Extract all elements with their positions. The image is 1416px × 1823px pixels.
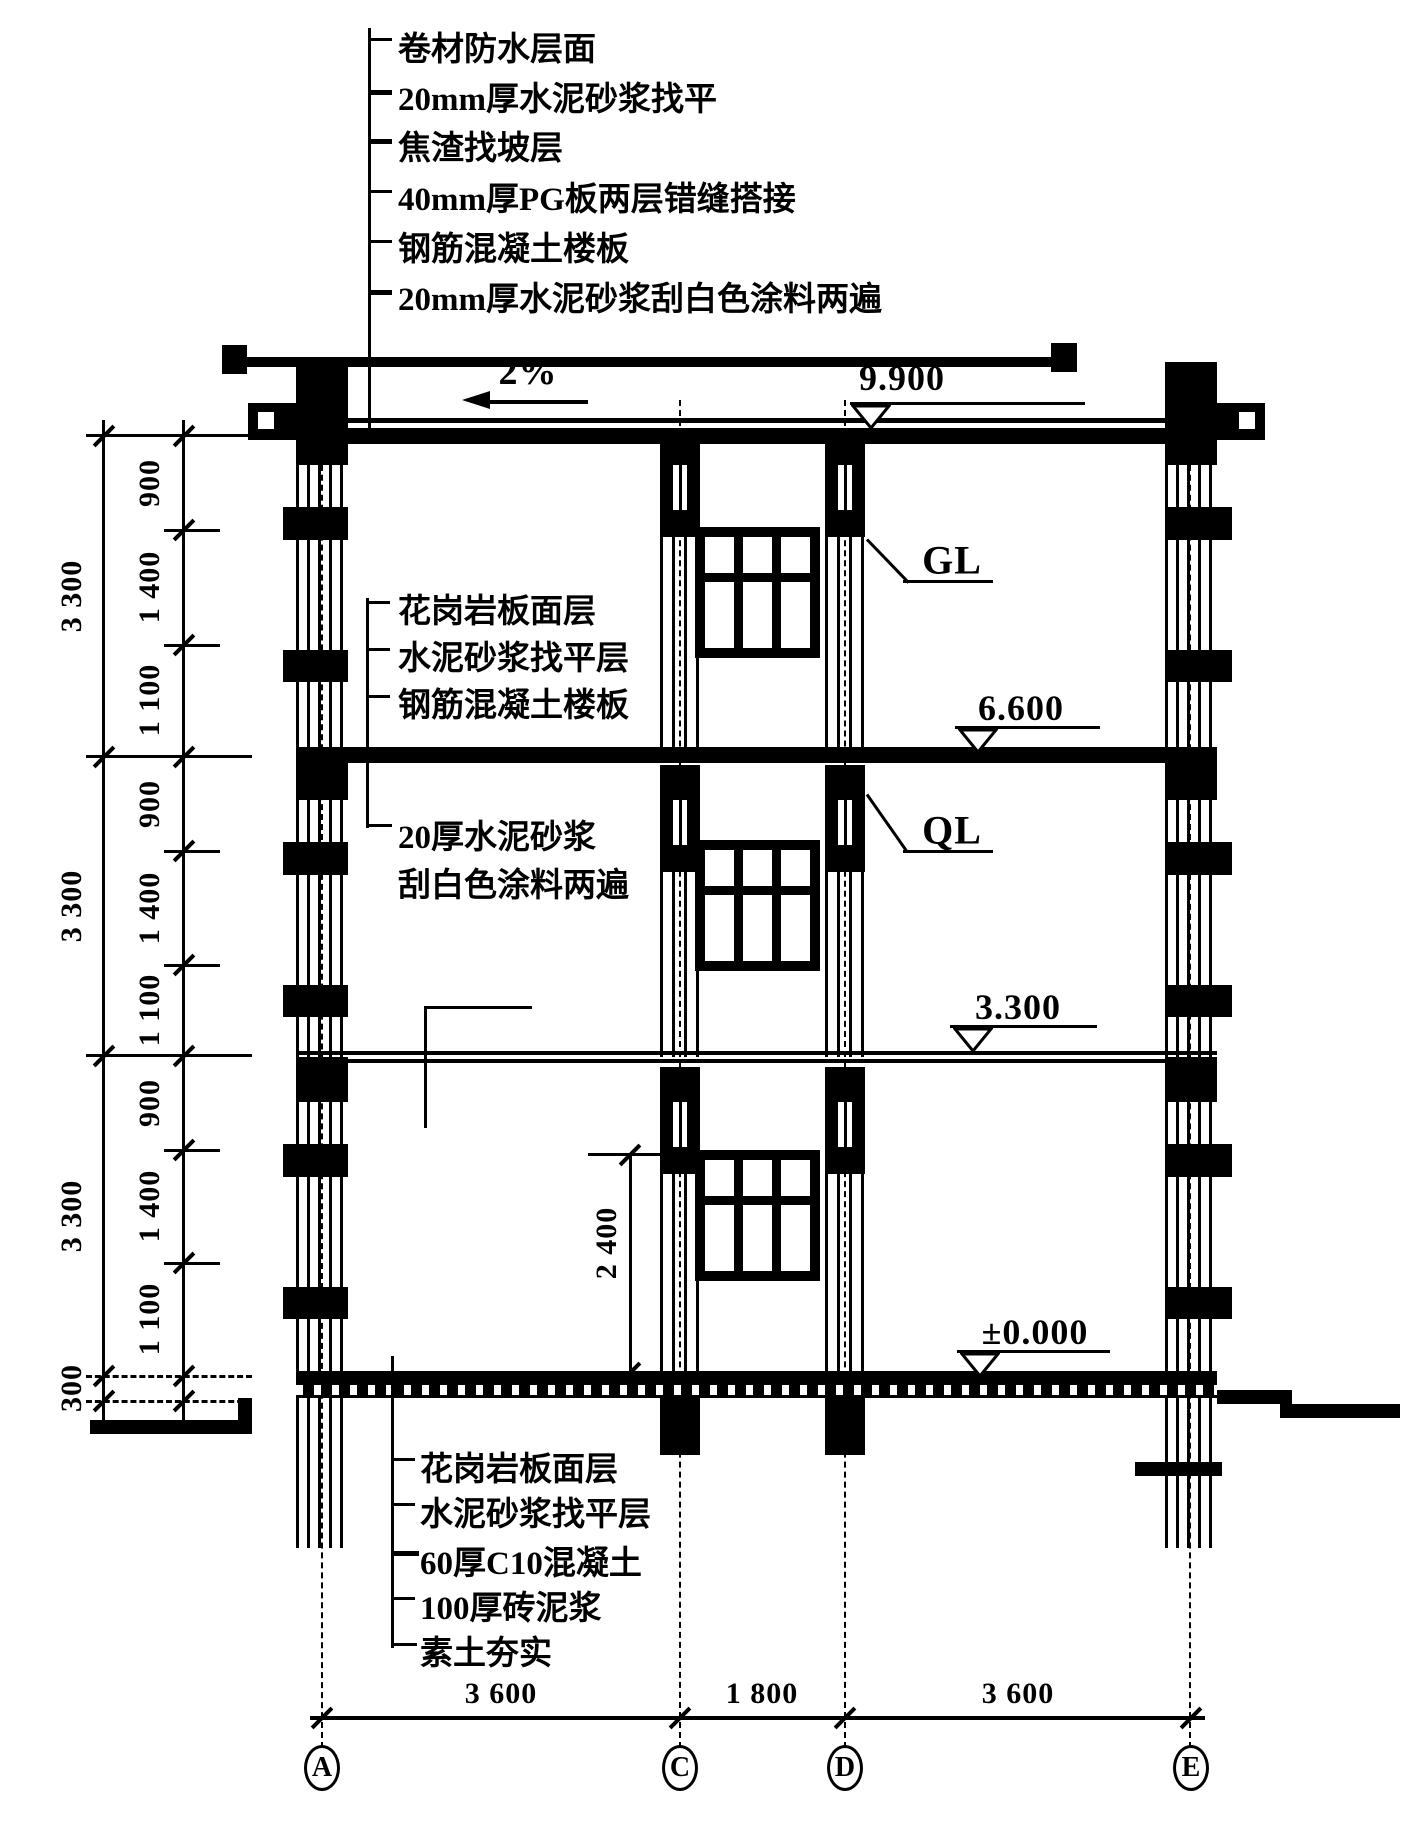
- sill-notch: [283, 842, 298, 875]
- wall-e-story-2: [1165, 755, 1217, 1057]
- slope-arrow-icon: [462, 391, 490, 409]
- callout-tick: [391, 1597, 415, 1600]
- ground-bedding-course: [296, 1382, 1217, 1398]
- column-d-story-1: [825, 1057, 865, 1373]
- elevation-triangle-icon: [953, 1027, 993, 1053]
- grid-label: A: [312, 1752, 332, 1784]
- roof-layer-label: 卷材防水层面: [398, 22, 596, 70]
- grid-bubble-d: D: [827, 1745, 863, 1791]
- wall-e-story-1: [1165, 1057, 1217, 1373]
- dim-label-bay: 3 600: [982, 1677, 1055, 1711]
- dim-label-window-height: 2 400: [590, 1207, 624, 1280]
- window-story-2: [695, 840, 820, 971]
- floor-slab-3300-top-line: [296, 1051, 1217, 1055]
- dim-label-bay: 3 600: [465, 1677, 538, 1711]
- dim-label-segment: 900: [133, 1079, 167, 1127]
- wall-a-story-1: [296, 1057, 348, 1373]
- sill-notch: [283, 1144, 298, 1177]
- grid-bubble-a: A: [304, 1745, 340, 1791]
- apron-right-lower: [1280, 1404, 1400, 1418]
- elevation-label-3300: 3.300: [975, 986, 1061, 1028]
- sill-notch: [1217, 507, 1232, 540]
- callout-tick: [391, 1458, 415, 1461]
- ground-layer-label: 60厚C10混凝土: [420, 1536, 642, 1584]
- footing-e: [1135, 1462, 1222, 1476]
- sill-notch: [1217, 1287, 1232, 1319]
- window-transom: [705, 886, 810, 895]
- floor-layer-label: 花岗岩板面层: [398, 584, 596, 632]
- elevation-triangle-icon: [958, 728, 998, 754]
- ground-callout-leader: [391, 1356, 394, 1648]
- dim-label-segment: 1 100: [133, 1283, 167, 1356]
- roof-layer-label: 20mm厚水泥砂浆刮白色涂料两遍: [398, 272, 882, 320]
- coping-hole-e: [1239, 412, 1255, 429]
- ground-floor-slab: [296, 1371, 1217, 1382]
- wall-finish-label: 刮白色涂料两遍: [398, 858, 629, 906]
- window-story-3: [695, 527, 820, 658]
- callout-tick: [391, 1551, 419, 1556]
- finish-leader-horizontal: [424, 1006, 532, 1009]
- dim-label-segment: 1 400: [133, 1170, 167, 1243]
- coping-block-a: [248, 403, 298, 440]
- callout-tick: [366, 648, 390, 651]
- ground-layer-label: 水泥砂浆找平层: [420, 1487, 651, 1535]
- dim-extension-line: [164, 644, 220, 647]
- sill-notch: [283, 507, 298, 540]
- dim-line-inner: [182, 420, 185, 1420]
- callout-tick: [368, 139, 392, 144]
- roof-layer-label: 焦渣找坡层: [398, 121, 563, 169]
- callout-tick: [366, 695, 390, 698]
- floor-slab-6600: [296, 747, 1217, 763]
- grid-bubble-e: E: [1173, 1745, 1209, 1791]
- callout-elbow: [391, 1643, 417, 1646]
- sill-notch: [1217, 650, 1232, 682]
- dim-line-bottom: [310, 1716, 1205, 1720]
- sill-notch: [283, 1287, 298, 1319]
- window-mullion: [772, 537, 781, 648]
- elevation-label-6600: 6.600: [978, 687, 1064, 729]
- grade-level-dash-line: [86, 1400, 252, 1403]
- grid-label: C: [670, 1752, 690, 1784]
- apron-left: [90, 1420, 252, 1434]
- roof-slab-top-line: [296, 418, 1217, 423]
- dim-extension-line: [164, 964, 220, 967]
- window-mullion: [772, 850, 781, 961]
- dim-label-bay: 1 800: [726, 1677, 799, 1711]
- column-c-story-3: [660, 420, 700, 755]
- callout-elbow: [366, 824, 392, 827]
- wall-finish-label: 20厚水泥砂浆: [398, 810, 596, 858]
- roof-slab: [296, 428, 1217, 444]
- floor-layer-label: 水泥砂浆找平层: [398, 631, 629, 679]
- column-d-story-3: [825, 420, 865, 755]
- grid-label: E: [1182, 1752, 1201, 1784]
- roof-callout-leader: [368, 28, 371, 432]
- wall-e-story-3: [1165, 420, 1217, 755]
- coping-block-e: [1215, 403, 1265, 440]
- gl-leader-diagonal: [866, 538, 910, 583]
- elevation-triangle-icon: [960, 1352, 1000, 1378]
- floor-callout-leader: [366, 598, 369, 828]
- sill-notch: [283, 650, 298, 682]
- elevation-triangle-icon: [851, 404, 891, 430]
- dim-label-overall: 3 300: [55, 870, 89, 943]
- callout-tick: [368, 290, 392, 295]
- coping-hole-a: [258, 412, 274, 429]
- ql-label: QL: [922, 807, 982, 854]
- dim-label-overall: 3 300: [55, 1180, 89, 1253]
- sill-notch: [1217, 1144, 1232, 1177]
- window-mullion: [734, 850, 743, 961]
- column-d-story-2: [825, 755, 865, 1057]
- roof-layer-label: 钢筋混凝土楼板: [398, 222, 629, 270]
- window-story-1: [695, 1150, 820, 1281]
- callout-tick: [368, 190, 392, 193]
- window-mullion: [734, 1160, 743, 1271]
- sill-notch: [1217, 985, 1232, 1017]
- floor-slab-3300-bottom-line: [296, 1059, 1217, 1063]
- dim-label-segment: 900: [133, 459, 167, 507]
- callout-tick: [391, 1503, 415, 1506]
- parapet-end-block-left: [222, 345, 247, 374]
- floor-layer-label: 钢筋混凝土楼板: [398, 678, 629, 726]
- dim-label-segment: 1 400: [133, 551, 167, 624]
- slope-label: 2%: [499, 350, 558, 394]
- dim-label-overall: 3 300: [55, 560, 89, 633]
- dim-extension-line: [86, 1054, 252, 1057]
- dim-label-segment: 1 100: [133, 664, 167, 737]
- ground-layer-label: 素土夯实: [420, 1626, 552, 1674]
- window-transom: [705, 1196, 810, 1205]
- window-transom: [705, 573, 810, 582]
- ground-layer-label: 花岗岩板面层: [420, 1442, 618, 1490]
- dim-extension-line: [164, 1149, 220, 1152]
- apron-left-riser: [238, 1398, 252, 1434]
- finish-leader-vertical: [424, 1006, 427, 1128]
- dim-label-segment: 900: [133, 780, 167, 828]
- callout-tick: [368, 240, 392, 243]
- parapet-end-block-right: [1051, 343, 1077, 372]
- dim-extension-line: [164, 850, 220, 853]
- ground-layer-label: 100厚砖泥浆: [420, 1581, 602, 1629]
- slope-arrow-line: [488, 400, 588, 404]
- dim-label-base: 300: [55, 1364, 89, 1412]
- wall-a-foundation: [296, 1398, 348, 1548]
- wall-a-story-3: [296, 420, 348, 755]
- dim-label-segment: 1 100: [133, 974, 167, 1047]
- section-drawing: 卷材防水层面 20mm厚水泥砂浆找平 焦渣找坡层 40mm厚PG板两层错缝搭接 …: [0, 0, 1416, 1823]
- window-mullion: [734, 537, 743, 648]
- dim-line-outer: [102, 420, 105, 1420]
- parapet-wall-a: [296, 362, 348, 422]
- sill-notch: [283, 985, 298, 1017]
- parapet-wall-e: [1165, 362, 1217, 422]
- dim-label-segment: 1 400: [133, 872, 167, 945]
- callout-tick: [366, 601, 390, 604]
- elevation-label-roof: 9.900: [859, 357, 945, 399]
- column-c-story-1: [660, 1057, 700, 1373]
- ql-leader-diagonal: [866, 794, 909, 853]
- grid-label: D: [835, 1752, 855, 1784]
- dim-extension-line: [164, 1262, 220, 1265]
- roof-layer-label: 20mm厚水泥砂浆找平: [398, 72, 717, 120]
- roof-layer-label: 40mm厚PG板两层错缝搭接: [398, 172, 796, 220]
- callout-tick: [368, 38, 392, 41]
- wall-a-story-2: [296, 755, 348, 1057]
- dim-extension-line: [164, 529, 220, 532]
- dim-line-2400: [629, 1155, 632, 1373]
- elevation-label-ground: ±0.000: [982, 1311, 1089, 1353]
- column-c-story-2: [660, 755, 700, 1057]
- sill-notch: [1217, 842, 1232, 875]
- callout-tick: [368, 90, 392, 95]
- ground-level-dash-line: [86, 1375, 252, 1378]
- gl-label: GL: [922, 537, 982, 584]
- grid-bubble-c: C: [662, 1745, 698, 1791]
- dim-extension-line: [86, 755, 252, 758]
- window-mullion: [772, 1160, 781, 1271]
- dim-extension-line: [86, 434, 252, 437]
- apron-right-upper: [1217, 1390, 1292, 1404]
